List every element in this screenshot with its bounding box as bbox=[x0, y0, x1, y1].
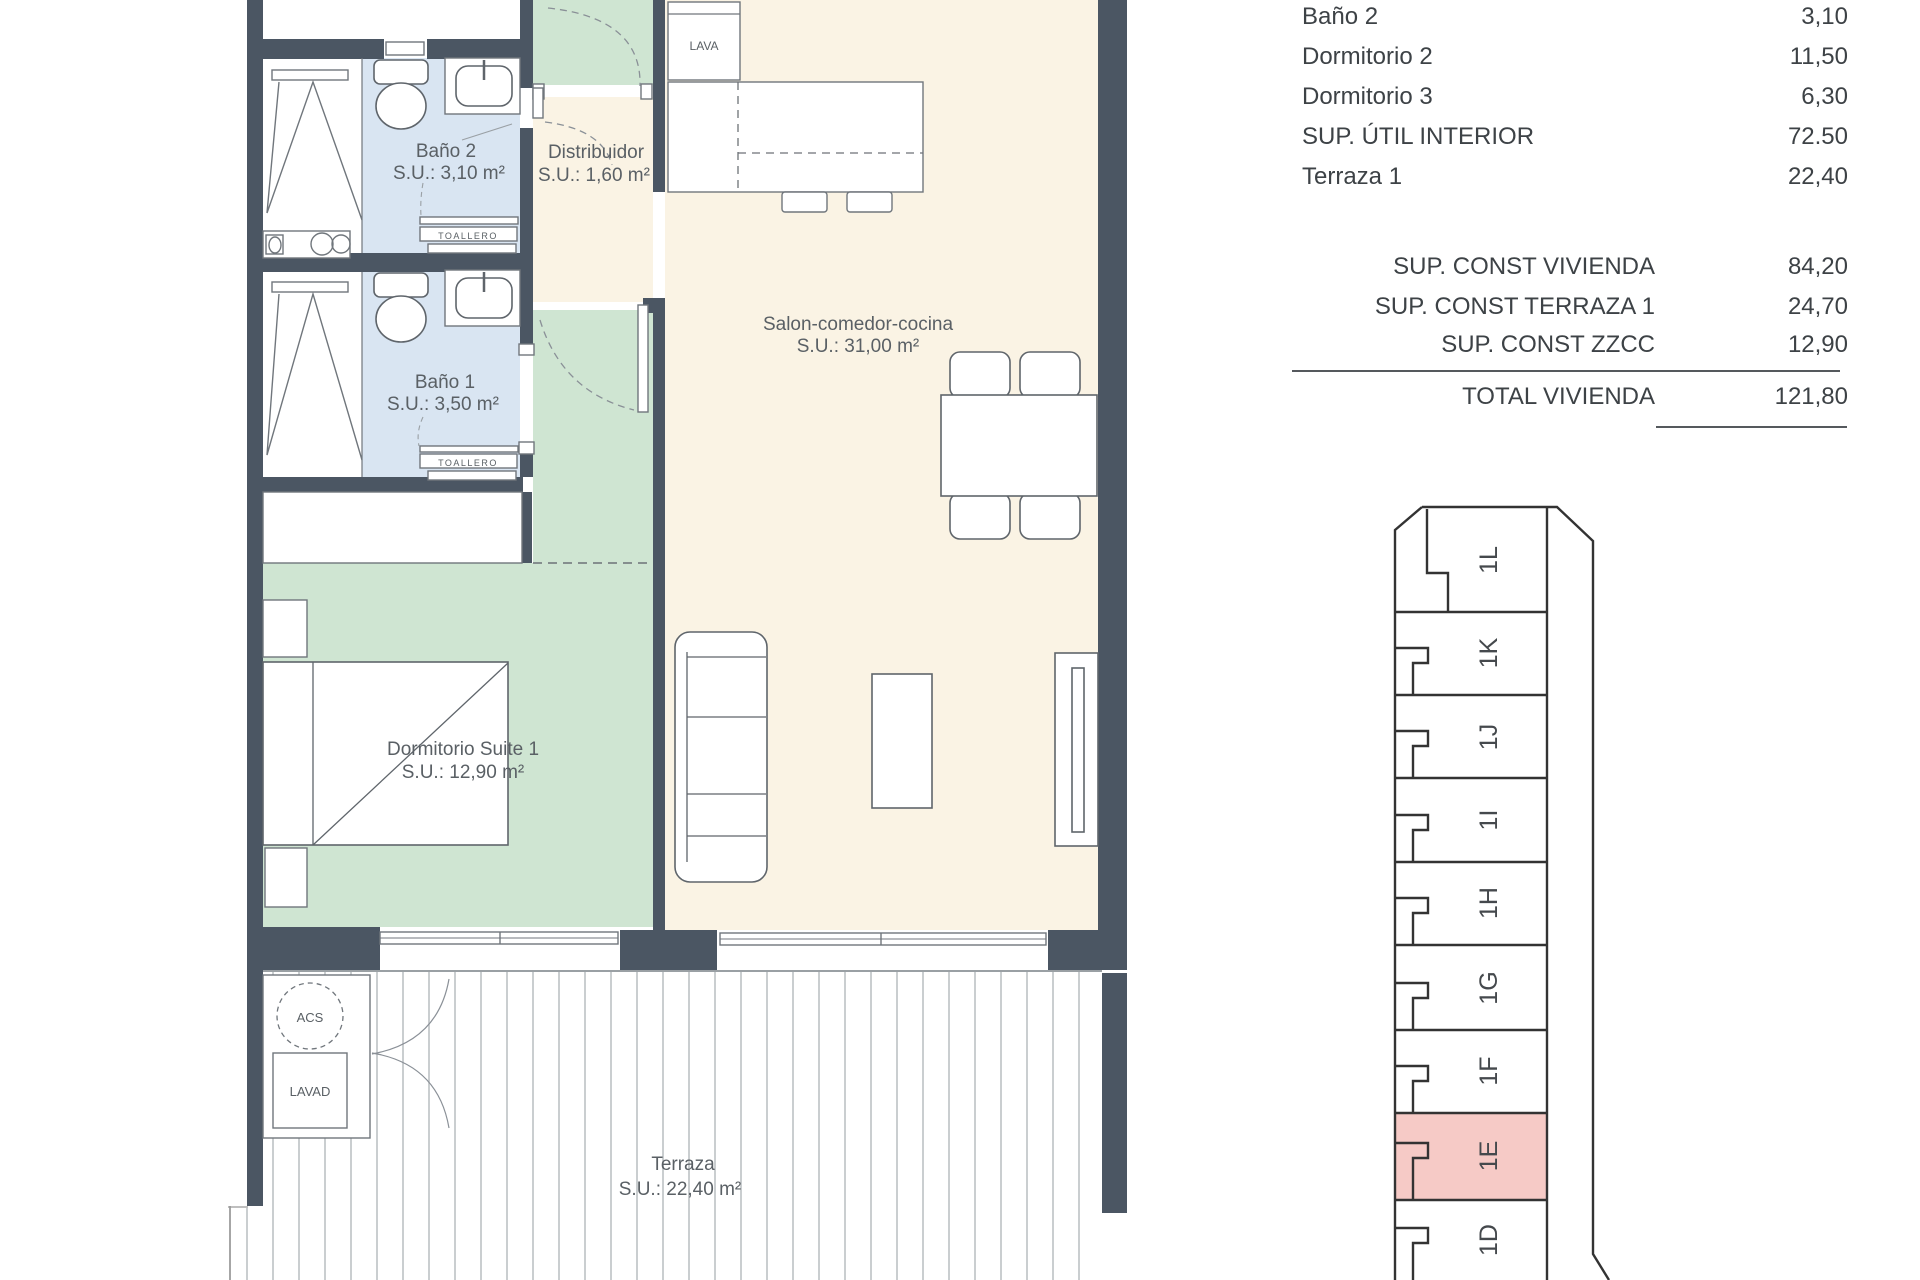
row-label: Dormitorio 3 bbox=[1292, 80, 1665, 114]
key-unit-1k: 1K bbox=[1475, 637, 1503, 668]
table-row: SUP. CONST VIVIENDA 84,20 bbox=[1292, 250, 1848, 284]
row-label: SUP. CONST VIVIENDA bbox=[1292, 250, 1655, 284]
key-unit-1e: 1E bbox=[1475, 1141, 1503, 1172]
room-label-terraza: Terraza bbox=[651, 1154, 715, 1175]
row-label: SUP. ÚTIL INTERIOR bbox=[1292, 120, 1665, 154]
room-label-distribuidor: Distribuidor bbox=[548, 142, 645, 163]
row-value: 11,50 bbox=[1665, 40, 1848, 74]
row-label: SUP. CONST TERRAZA 1 bbox=[1292, 290, 1655, 324]
key-plan: 1L 1K 1J 1I 1H 1G 1F 1E 1D bbox=[1395, 507, 1609, 1280]
bedroom-furniture bbox=[263, 492, 522, 907]
row-value: 22,40 bbox=[1665, 160, 1848, 194]
room-su-distribuidor: S.U.: 1,60 m² bbox=[538, 165, 650, 186]
key-unit-1l: 1L bbox=[1475, 546, 1503, 574]
row-value: 3,10 bbox=[1665, 0, 1848, 34]
fixture-label-toallero-1: TOALLERO bbox=[438, 458, 498, 468]
table-row: Dormitorio 3 6,30 bbox=[1292, 80, 1848, 114]
key-unit-1h: 1H bbox=[1475, 887, 1503, 919]
total-label: TOTAL VIVIENDA bbox=[1292, 380, 1655, 414]
table-rule-top bbox=[1292, 370, 1840, 372]
key-unit-1g: 1G bbox=[1475, 971, 1503, 1004]
row-label: SUP. CONST ZZCC bbox=[1292, 328, 1655, 362]
table-row: SUP. CONST TERRAZA 1 24,70 bbox=[1292, 290, 1848, 324]
key-unit-1j: 1J bbox=[1475, 724, 1503, 750]
fixture-label-lavad: LAVAD bbox=[290, 1084, 331, 1099]
table-row: Terraza 1 22,40 bbox=[1292, 160, 1848, 194]
key-unit-1d: 1D bbox=[1475, 1224, 1503, 1256]
fixture-label-lava: LAVA bbox=[690, 39, 719, 53]
row-value: 84,20 bbox=[1655, 250, 1848, 284]
room-label-bano1: Baño 1 bbox=[415, 372, 475, 393]
room-label-dormitorio: Dormitorio Suite 1 bbox=[387, 739, 539, 760]
room-su-salon: S.U.: 31,00 m² bbox=[797, 336, 920, 357]
room-label-bano2: Baño 2 bbox=[416, 141, 476, 162]
key-plan-highlight-1e bbox=[1396, 1114, 1546, 1199]
key-unit-1f: 1F bbox=[1475, 1056, 1503, 1085]
room-su-dormitorio: S.U.: 12,90 m² bbox=[402, 762, 525, 783]
room-su-bano1: S.U.: 3,50 m² bbox=[387, 394, 499, 415]
row-value: 24,70 bbox=[1655, 290, 1848, 324]
fixture-label-toallero-2: TOALLERO bbox=[438, 231, 498, 241]
row-label: Terraza 1 bbox=[1292, 160, 1665, 194]
table-row: Dormitorio 2 11,50 bbox=[1292, 40, 1848, 74]
row-label: Dormitorio 2 bbox=[1292, 40, 1665, 74]
floor-plan-sheet: Baño 2 S.U.: 3,10 m² Baño 1 S.U.: 3,50 m… bbox=[0, 0, 1920, 1280]
room-su-terraza: S.U.: 22,40 m² bbox=[619, 1179, 742, 1200]
table-rule-bottom bbox=[1656, 426, 1847, 428]
table-row: Baño 2 3,10 bbox=[1292, 0, 1848, 34]
table-row: SUP. CONST ZZCC 12,90 bbox=[1292, 328, 1848, 362]
row-value: 72.50 bbox=[1665, 120, 1848, 154]
table-row-total: TOTAL VIVIENDA 121,80 bbox=[1292, 380, 1848, 414]
row-label: Baño 2 bbox=[1292, 0, 1665, 34]
room-su-bano2: S.U.: 3,10 m² bbox=[393, 163, 505, 184]
fixture-label-acs: ACS bbox=[297, 1010, 324, 1025]
row-value: 12,90 bbox=[1655, 328, 1848, 362]
key-unit-1i: 1I bbox=[1475, 810, 1503, 831]
room-label-salon: Salon-comedor-cocina bbox=[763, 314, 954, 335]
total-value: 121,80 bbox=[1655, 380, 1848, 414]
surface-table: Baño 2 3,10 Dormitorio 2 11,50 Dormitori… bbox=[1292, 0, 1848, 440]
row-value: 6,30 bbox=[1665, 80, 1848, 114]
table-row: SUP. ÚTIL INTERIOR 72.50 bbox=[1292, 120, 1848, 154]
